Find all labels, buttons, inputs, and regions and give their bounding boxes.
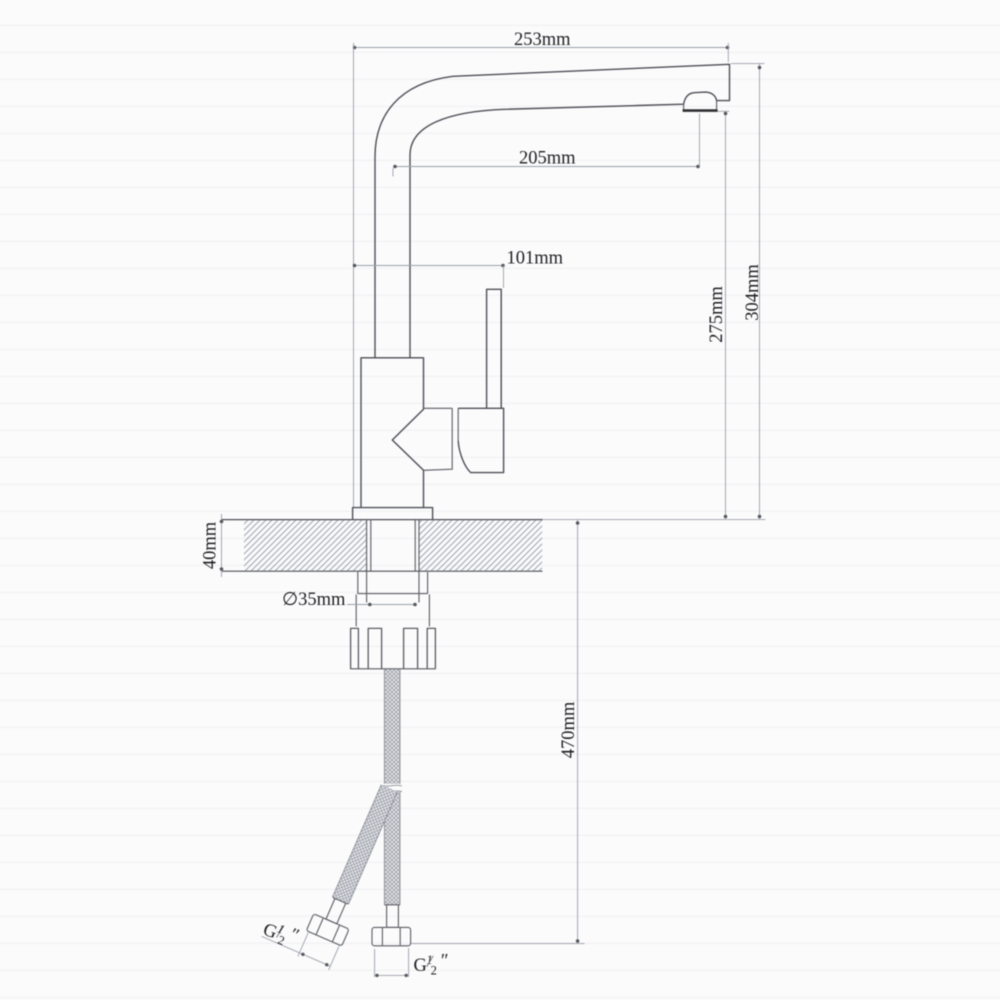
- svg-text:101mm: 101mm: [507, 249, 564, 269]
- svg-text:304mm: 304mm: [743, 264, 763, 321]
- svg-text:275mm: 275mm: [707, 286, 727, 343]
- svg-text:40mm: 40mm: [201, 521, 221, 569]
- svg-text:470mm: 470mm: [559, 701, 579, 758]
- svg-text:253mm: 253mm: [514, 30, 571, 50]
- svg-text:G12″: G12″: [260, 916, 302, 952]
- svg-text:∅35mm: ∅35mm: [282, 590, 346, 610]
- svg-text:205mm: 205mm: [519, 149, 576, 169]
- svg-text:G12″: G12″: [414, 952, 449, 978]
